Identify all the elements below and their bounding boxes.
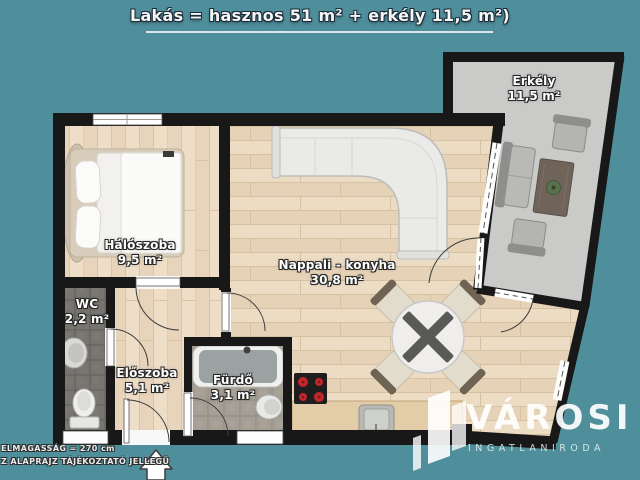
agency-logo: VÁROSI INGATLANIRODA xyxy=(412,386,640,476)
bed xyxy=(62,144,184,262)
ceiling-height-note: ELMAGASSÁG = 270 cm xyxy=(1,444,115,453)
agency-logo-brand: VÁROSI xyxy=(466,398,633,438)
balcony-table xyxy=(533,158,574,216)
bedroom-window xyxy=(93,114,162,125)
agency-logo-subtitle: INGATLANIRODA xyxy=(468,443,605,454)
wc-window xyxy=(63,431,108,444)
bathroom-sink xyxy=(256,395,282,419)
bathroom-window xyxy=(237,431,283,444)
title-underline xyxy=(146,31,493,33)
disclaimer-note: Z ALAPRAJZ TÁJÉKOZTATÓ JELLEGŰ xyxy=(1,457,169,466)
cooktop xyxy=(294,373,327,404)
floorplan-canvas: Lakás = hasznos 51 m² + erkély 11,5 m²) … xyxy=(0,0,640,480)
bathtub xyxy=(193,346,283,387)
plan-title: Lakás = hasznos 51 m² + erkély 11,5 m²) xyxy=(0,6,640,25)
